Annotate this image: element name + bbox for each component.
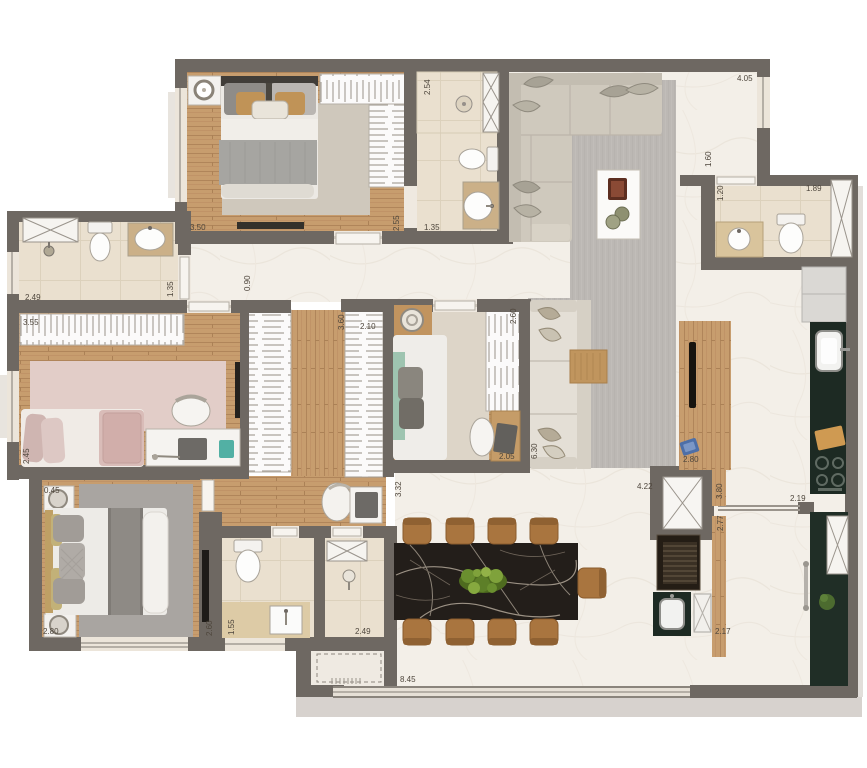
svg-text:3.60: 3.60: [337, 314, 346, 330]
svg-text:4.22: 4.22: [637, 482, 653, 491]
svg-text:3.55: 3.55: [23, 318, 39, 327]
svg-text:0.45: 0.45: [44, 486, 60, 495]
svg-text:2.49: 2.49: [25, 293, 41, 302]
svg-text:1.35: 1.35: [424, 223, 440, 232]
svg-text:3.32: 3.32: [394, 481, 403, 497]
svg-text:0.90: 0.90: [243, 275, 252, 291]
svg-text:1.89: 1.89: [806, 184, 822, 193]
svg-text:2.49: 2.49: [355, 627, 371, 636]
svg-text:2.54: 2.54: [423, 79, 432, 95]
svg-text:2.19: 2.19: [790, 494, 806, 503]
svg-text:2.80: 2.80: [683, 455, 699, 464]
svg-text:1.35: 1.35: [166, 281, 175, 297]
svg-text:4.05: 4.05: [737, 74, 753, 83]
svg-text:2.17: 2.17: [715, 627, 731, 636]
svg-text:2.80: 2.80: [43, 627, 59, 636]
svg-text:3.80: 3.80: [715, 483, 724, 499]
svg-text:1.55: 1.55: [227, 619, 236, 635]
svg-text:8.45: 8.45: [400, 675, 416, 684]
svg-text:2.55: 2.55: [392, 215, 401, 231]
svg-text:1.60: 1.60: [704, 151, 713, 167]
svg-text:2.45: 2.45: [22, 448, 31, 464]
svg-text:2.77: 2.77: [716, 515, 725, 531]
svg-text:1.20: 1.20: [716, 185, 725, 201]
svg-text:2.60: 2.60: [509, 308, 518, 324]
svg-text:3.50: 3.50: [190, 223, 206, 232]
svg-text:2.05: 2.05: [499, 452, 515, 461]
svg-text:2.60: 2.60: [205, 620, 214, 636]
svg-text:2.10: 2.10: [360, 322, 376, 331]
svg-text:6.30: 6.30: [530, 443, 539, 459]
